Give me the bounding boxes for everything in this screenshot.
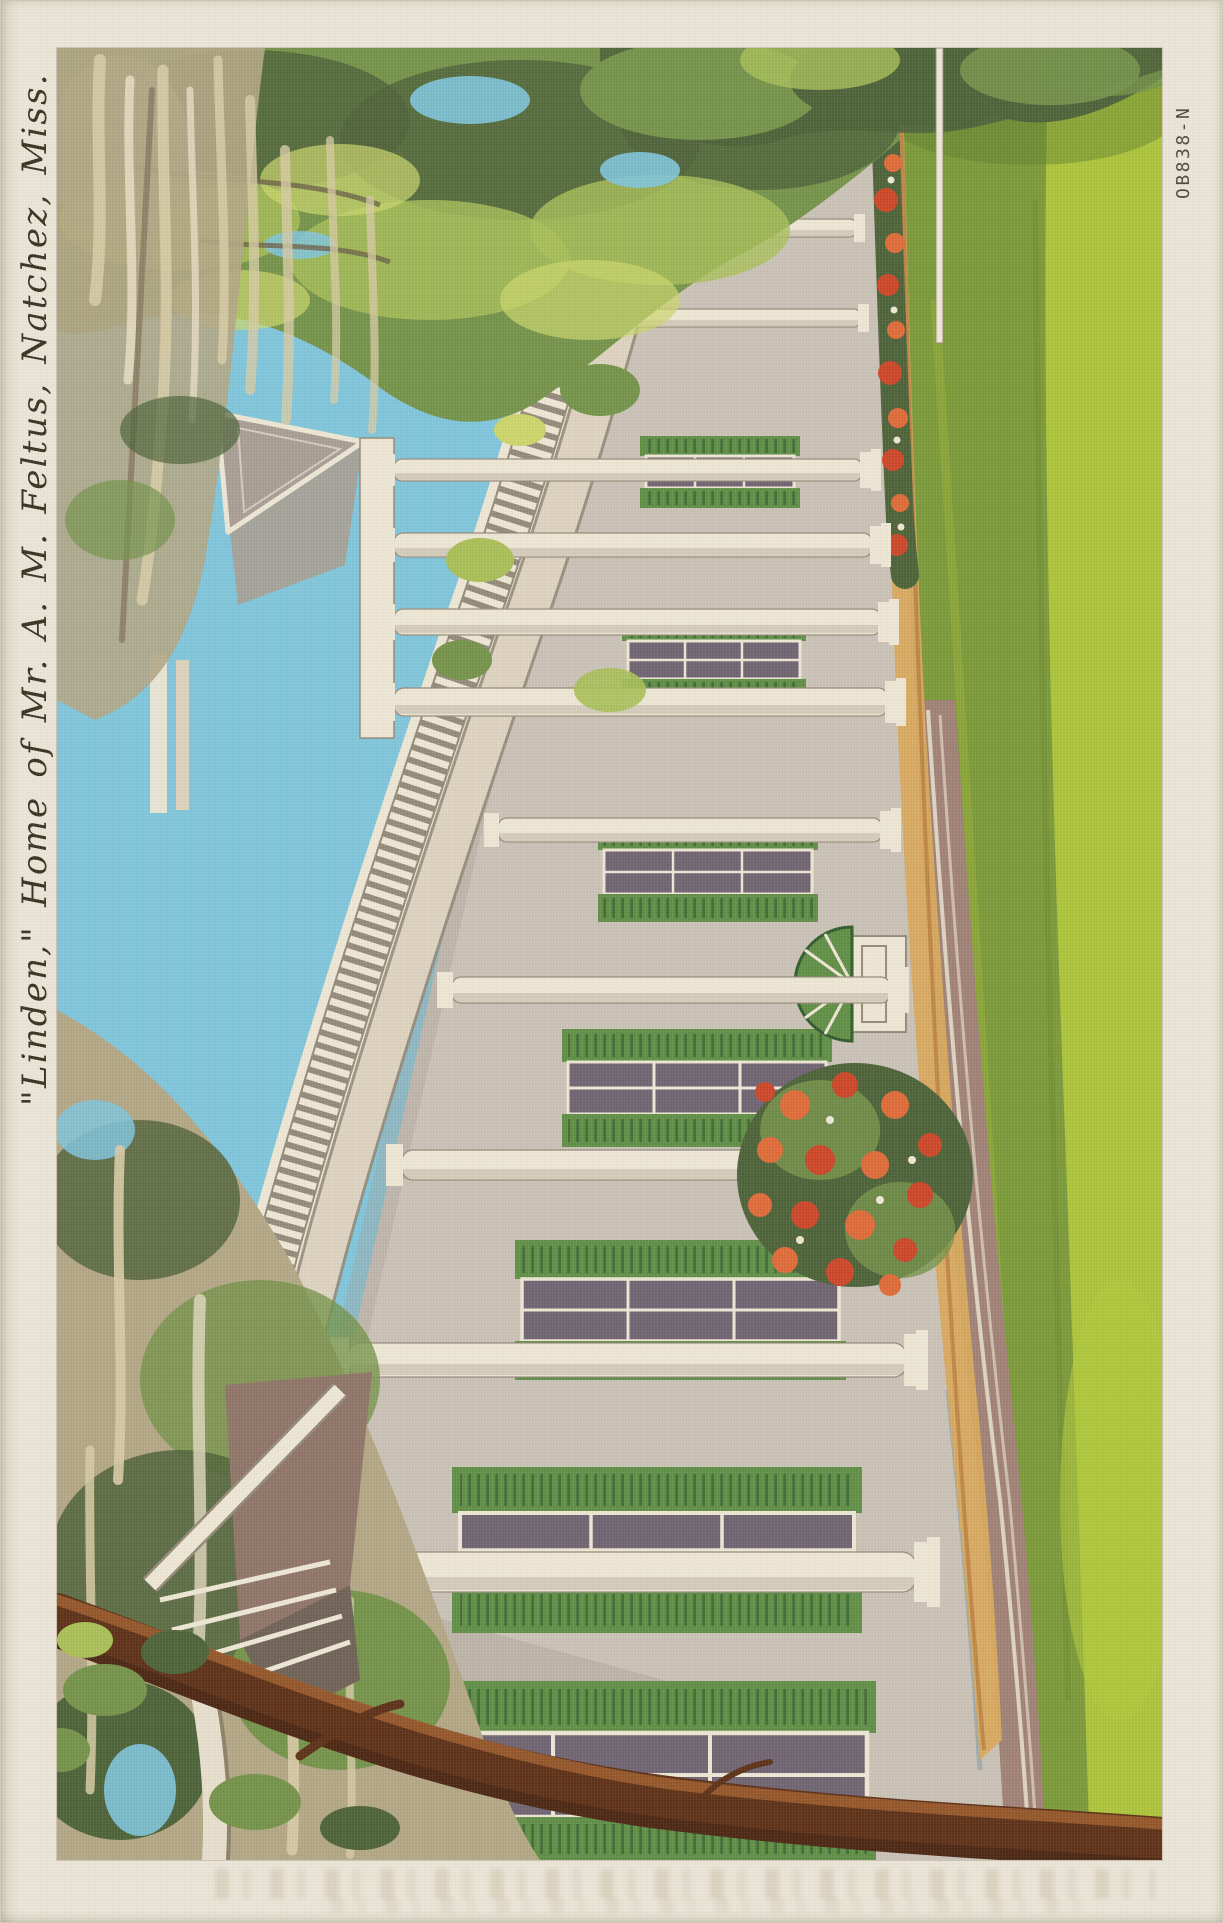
flower-bush	[737, 1063, 973, 1296]
print-through-texture	[215, 1869, 1155, 1899]
lawn-pole	[936, 48, 943, 343]
window	[452, 1467, 862, 1633]
postcard-scan: "Linden," Home of Mr. A. M. Feltus, Natc…	[0, 0, 1223, 1923]
print-through-texture	[330, 1897, 1090, 1913]
postcard-caption: "Linden," Home of Mr. A. M. Feltus, Natc…	[6, 66, 66, 1106]
postcard-illustration	[57, 48, 1162, 1860]
stock-number: OB838-N	[1170, 79, 1200, 199]
